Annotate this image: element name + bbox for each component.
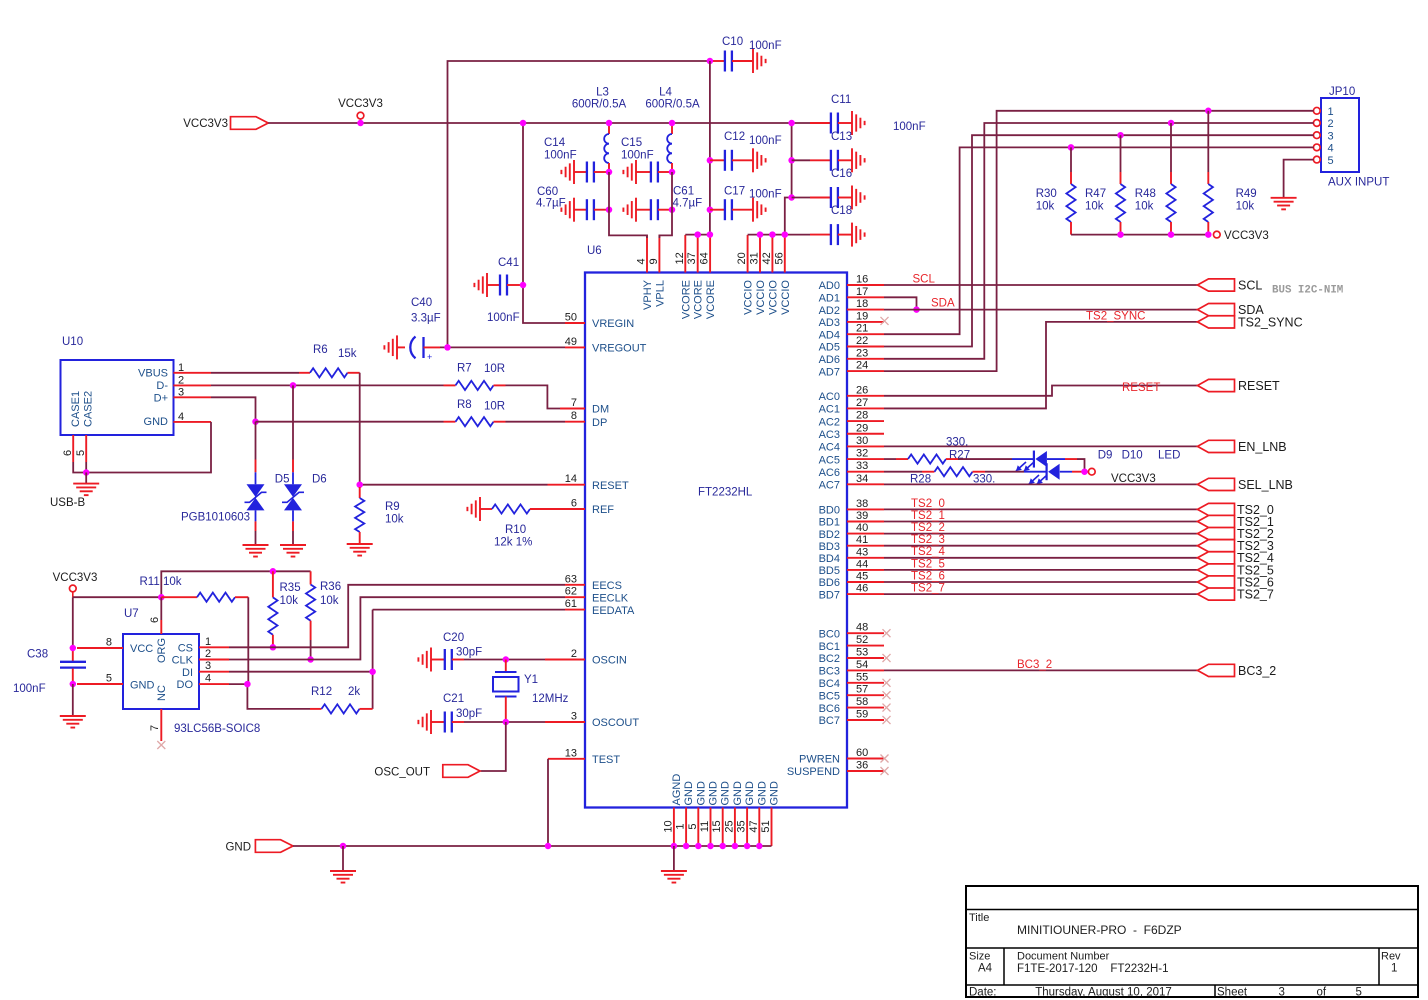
svg-text:53: 53 <box>856 647 868 659</box>
svg-text:10k: 10k <box>1236 201 1255 213</box>
svg-text:EECLK: EECLK <box>592 592 629 604</box>
svg-text:330.: 330. <box>946 437 968 449</box>
svg-text:TS2_SYNC: TS2_SYNC <box>1086 310 1145 322</box>
svg-text:C10: C10 <box>722 36 743 48</box>
svg-text:41: 41 <box>856 534 868 546</box>
svg-text:VCC3V3: VCC3V3 <box>183 118 228 130</box>
svg-text:VCCIO: VCCIO <box>767 280 779 315</box>
svg-text:47: 47 <box>748 820 760 832</box>
svg-text:TEST: TEST <box>592 754 620 766</box>
svg-text:100nF: 100nF <box>749 135 782 147</box>
svg-text:100nF: 100nF <box>487 312 520 324</box>
svg-text:TS2_1: TS2_1 <box>911 510 945 522</box>
svg-text:AD3: AD3 <box>819 317 840 329</box>
svg-text:AD2: AD2 <box>819 305 840 317</box>
svg-text:C38: C38 <box>27 649 48 661</box>
svg-text:22: 22 <box>856 335 868 347</box>
svg-text:93LC56B-SOIC8: 93LC56B-SOIC8 <box>174 723 260 735</box>
svg-text:D9: D9 <box>1098 450 1113 462</box>
svg-text:C17: C17 <box>724 186 745 198</box>
svg-text:D10: D10 <box>1122 450 1143 462</box>
svg-text:600R/0.5A: 600R/0.5A <box>572 99 627 111</box>
svg-text:GND: GND <box>756 781 768 806</box>
svg-text:VCORE: VCORE <box>693 280 705 319</box>
svg-text:AC2: AC2 <box>819 416 840 428</box>
svg-text:RESET: RESET <box>1122 382 1160 394</box>
svg-text:REF: REF <box>592 504 614 516</box>
svg-text:10: 10 <box>662 820 674 832</box>
svg-text:PGB1010603: PGB1010603 <box>181 512 250 524</box>
svg-text:11: 11 <box>699 821 711 832</box>
svg-text:AD5: AD5 <box>819 342 840 354</box>
svg-text:50: 50 <box>565 312 577 324</box>
svg-text:AC4: AC4 <box>819 442 840 454</box>
svg-text:D+: D+ <box>154 393 168 405</box>
svg-text:31: 31 <box>749 252 761 264</box>
svg-text:EECS: EECS <box>592 580 622 592</box>
svg-text:12MHz: 12MHz <box>532 693 569 705</box>
svg-text:1: 1 <box>675 823 687 829</box>
svg-text:AD1: AD1 <box>819 293 840 305</box>
svg-text:C11: C11 <box>831 94 851 106</box>
svg-text:10k: 10k <box>1135 201 1154 213</box>
svg-text:C20: C20 <box>443 632 464 644</box>
svg-text:SEL_LNB: SEL_LNB <box>1238 478 1293 492</box>
svg-text:AD6: AD6 <box>819 354 840 366</box>
svg-text:BD6: BD6 <box>819 577 840 589</box>
svg-text:60: 60 <box>856 747 868 759</box>
svg-text:2: 2 <box>205 648 211 660</box>
svg-text:SCL: SCL <box>913 274 936 286</box>
svg-text:4: 4 <box>636 258 648 264</box>
svg-text:RESET: RESET <box>592 480 629 492</box>
svg-text:3: 3 <box>571 711 577 723</box>
svg-text:R8: R8 <box>457 399 472 411</box>
svg-text:37: 37 <box>686 252 698 264</box>
svg-text:BC0: BC0 <box>819 628 840 640</box>
svg-text:100nF: 100nF <box>544 150 577 162</box>
svg-text:19: 19 <box>856 310 868 322</box>
svg-text:10R: 10R <box>484 401 505 413</box>
svg-text:R10: R10 <box>505 524 526 536</box>
svg-text:BD0: BD0 <box>819 505 840 517</box>
svg-text:10k: 10k <box>280 595 299 607</box>
svg-text:CASE2: CASE2 <box>83 391 95 427</box>
svg-text:C15: C15 <box>621 137 642 149</box>
svg-text:C61: C61 <box>673 186 694 198</box>
svg-text:D-: D- <box>156 380 168 392</box>
svg-text:TS2_7: TS2_7 <box>1237 588 1274 602</box>
svg-text:42: 42 <box>761 252 773 264</box>
svg-text:OSC_OUT: OSC_OUT <box>374 767 430 779</box>
svg-text:R9: R9 <box>385 501 400 513</box>
svg-text:10k: 10k <box>1036 201 1055 213</box>
svg-text:RESET: RESET <box>1238 379 1280 393</box>
svg-text:DP: DP <box>592 417 607 429</box>
svg-text:2: 2 <box>1328 118 1334 130</box>
svg-text:BC2: BC2 <box>819 653 840 665</box>
svg-text:C14: C14 <box>544 137 566 149</box>
svg-text:10k: 10k <box>320 595 339 607</box>
svg-text:24: 24 <box>856 360 868 372</box>
svg-text:EN_LNB: EN_LNB <box>1238 440 1287 454</box>
svg-text:3: 3 <box>1328 130 1334 142</box>
svg-text:GND: GND <box>130 679 155 691</box>
svg-text:35: 35 <box>736 820 748 832</box>
svg-text:4.7µF: 4.7µF <box>673 198 703 210</box>
svg-text:JP10: JP10 <box>1329 86 1355 98</box>
svg-text:Y1: Y1 <box>524 674 538 686</box>
svg-text:100nF: 100nF <box>893 121 926 133</box>
svg-text:8: 8 <box>106 637 112 649</box>
svg-text:BC3_2: BC3_2 <box>1017 659 1052 671</box>
svg-text:D6: D6 <box>312 474 327 486</box>
svg-text:64: 64 <box>699 252 711 264</box>
svg-text:100nF: 100nF <box>13 683 46 695</box>
svg-text:AC0: AC0 <box>819 391 840 403</box>
svg-text:ORG: ORG <box>156 638 168 663</box>
svg-text:VREGIN: VREGIN <box>592 318 634 330</box>
svg-text:AC7: AC7 <box>819 480 840 492</box>
svg-text:4: 4 <box>1328 143 1334 155</box>
svg-text:AGND: AGND <box>671 774 683 806</box>
svg-text:59: 59 <box>856 709 868 721</box>
svg-text:39: 39 <box>856 510 868 522</box>
svg-text:57: 57 <box>856 684 868 696</box>
svg-text:C16: C16 <box>831 168 852 180</box>
svg-text:C40: C40 <box>411 297 432 309</box>
svg-text:BD5: BD5 <box>819 565 840 577</box>
svg-text:R30: R30 <box>1036 188 1057 200</box>
svg-text:TS2_5: TS2_5 <box>911 558 945 570</box>
svg-text:40: 40 <box>856 522 868 534</box>
svg-text:AC3: AC3 <box>819 429 840 441</box>
svg-text:3.3µF: 3.3µF <box>411 313 441 325</box>
svg-text:R12: R12 <box>311 686 332 698</box>
svg-text:46: 46 <box>856 583 868 595</box>
svg-text:26: 26 <box>856 384 868 396</box>
svg-text:6: 6 <box>62 450 74 456</box>
svg-text:OSCOUT: OSCOUT <box>592 717 639 729</box>
svg-text:Sheet: Sheet <box>1217 987 1248 999</box>
svg-text:5: 5 <box>1356 987 1362 999</box>
svg-text:F1TE-2017-120 FT2232H-1: F1TE-2017-120 FT2232H-1 <box>1017 963 1169 975</box>
svg-text:30pF: 30pF <box>456 708 482 720</box>
svg-text:56: 56 <box>773 252 785 264</box>
svg-text:2k: 2k <box>348 686 360 698</box>
svg-text:C21: C21 <box>443 693 464 705</box>
svg-text:D5: D5 <box>275 474 290 486</box>
svg-text:GND: GND <box>744 781 756 806</box>
svg-text:+: + <box>427 352 432 362</box>
svg-text:12k 1%: 12k 1% <box>494 537 532 549</box>
svg-text:6: 6 <box>571 498 577 510</box>
svg-text:VCC3V3: VCC3V3 <box>1111 473 1156 485</box>
svg-text:VCC3V3: VCC3V3 <box>53 572 98 584</box>
svg-text:34: 34 <box>856 473 868 485</box>
svg-text:C12: C12 <box>724 131 745 143</box>
svg-text:54: 54 <box>856 659 868 671</box>
svg-text:5: 5 <box>1328 155 1334 167</box>
svg-text:15k: 15k <box>338 348 357 360</box>
svg-text:U6: U6 <box>587 245 602 257</box>
svg-text:9: 9 <box>648 258 660 264</box>
svg-text:33: 33 <box>856 460 868 472</box>
svg-text:10k: 10k <box>1085 201 1104 213</box>
svg-text:VPLL: VPLL <box>654 280 666 307</box>
svg-text:LED: LED <box>1158 450 1180 462</box>
svg-text:2: 2 <box>571 648 577 660</box>
svg-text:R36: R36 <box>320 581 341 593</box>
svg-text:BC1: BC1 <box>819 641 840 653</box>
svg-text:CASE1: CASE1 <box>70 391 82 427</box>
svg-text:VCCIO: VCCIO <box>780 280 792 315</box>
svg-text:10k: 10k <box>385 514 404 526</box>
svg-text:A4: A4 <box>978 963 993 975</box>
svg-text:USB-B: USB-B <box>50 497 85 509</box>
svg-text:16: 16 <box>856 274 868 286</box>
svg-text:7: 7 <box>149 725 161 731</box>
svg-text:DI: DI <box>182 667 193 679</box>
svg-text:3: 3 <box>205 660 211 672</box>
svg-text:3: 3 <box>1279 987 1285 999</box>
svg-text:32: 32 <box>856 448 868 460</box>
svg-text:23: 23 <box>856 347 868 359</box>
svg-text:Thursday, August 10, 2017: Thursday, August 10, 2017 <box>1035 987 1172 999</box>
svg-text:BD1: BD1 <box>819 517 840 529</box>
svg-text:61: 61 <box>565 598 577 610</box>
svg-text:DO: DO <box>177 679 194 691</box>
svg-text:OSCIN: OSCIN <box>592 655 627 667</box>
svg-text:30: 30 <box>856 435 868 447</box>
svg-text:VCCIO: VCCIO <box>743 280 755 315</box>
svg-text:TS2_SYNC: TS2_SYNC <box>1238 315 1303 329</box>
svg-text:Rev: Rev <box>1381 951 1401 963</box>
svg-text:AUX INPUT: AUX INPUT <box>1328 177 1389 189</box>
svg-text:BC5: BC5 <box>819 690 840 702</box>
svg-text:BD3: BD3 <box>819 541 840 553</box>
svg-text:TS2_0: TS2_0 <box>911 498 945 510</box>
svg-text:AD4: AD4 <box>819 329 840 341</box>
svg-text:1: 1 <box>1391 963 1397 975</box>
svg-text:8: 8 <box>571 410 577 422</box>
svg-text:20: 20 <box>736 252 748 264</box>
svg-text:R47: R47 <box>1085 188 1106 200</box>
svg-text:10R: 10R <box>484 363 505 375</box>
svg-text:62: 62 <box>565 586 577 598</box>
svg-text:38: 38 <box>856 498 868 510</box>
svg-text:GND: GND <box>708 781 720 806</box>
svg-text:VCC3V3: VCC3V3 <box>338 98 383 110</box>
svg-text:U10: U10 <box>62 336 83 348</box>
svg-text:C60: C60 <box>537 186 558 198</box>
svg-text:AC1: AC1 <box>819 404 840 416</box>
svg-text:Size: Size <box>969 951 990 963</box>
svg-text:7: 7 <box>571 397 577 409</box>
svg-text:BC3_2: BC3_2 <box>1238 664 1276 678</box>
svg-text:R11 10k: R11 10k <box>140 576 182 588</box>
svg-text:GND: GND <box>695 781 707 806</box>
svg-text:27: 27 <box>856 397 868 409</box>
svg-text:15: 15 <box>711 820 723 832</box>
svg-text:VPHY: VPHY <box>642 279 654 310</box>
svg-text:GND: GND <box>683 781 695 806</box>
svg-text:AD7: AD7 <box>819 366 840 378</box>
svg-text:DM: DM <box>592 404 609 416</box>
svg-text:R6: R6 <box>313 344 328 356</box>
svg-text:Document Number: Document Number <box>1017 951 1110 963</box>
svg-text:VCORE: VCORE <box>705 280 717 319</box>
svg-text:100nF: 100nF <box>621 150 654 162</box>
svg-text:VCORE: VCORE <box>680 280 692 319</box>
svg-text:BC3: BC3 <box>819 666 840 678</box>
svg-text:CS: CS <box>178 642 193 654</box>
svg-text:SDA: SDA <box>931 298 955 310</box>
svg-text:Title: Title <box>969 912 989 924</box>
svg-text:BD2: BD2 <box>819 529 840 541</box>
svg-text:58: 58 <box>856 696 868 708</box>
svg-text:VCC3V3: VCC3V3 <box>1224 230 1269 242</box>
svg-text:CLK: CLK <box>172 655 194 667</box>
svg-text:BD7: BD7 <box>819 589 840 601</box>
svg-text:R35: R35 <box>280 582 301 594</box>
svg-text:MINITIOUNER-PRO - F6DZP: MINITIOUNER-PRO - F6DZP <box>1017 923 1182 937</box>
svg-text:5: 5 <box>106 673 112 685</box>
svg-text:NC: NC <box>156 685 168 701</box>
svg-text:BC6: BC6 <box>819 703 840 715</box>
svg-text:GND: GND <box>225 841 251 853</box>
svg-text:BC4: BC4 <box>819 678 840 690</box>
svg-text:VCC: VCC <box>130 643 153 655</box>
svg-text:13: 13 <box>565 747 577 759</box>
svg-text:63: 63 <box>565 573 577 585</box>
svg-text:600R/0.5A: 600R/0.5A <box>645 99 700 111</box>
svg-text:43: 43 <box>856 546 868 558</box>
svg-text:SUSPEND: SUSPEND <box>787 766 840 778</box>
svg-text:6: 6 <box>149 617 161 623</box>
svg-text:GND: GND <box>720 781 732 806</box>
svg-text:C41: C41 <box>498 257 519 269</box>
svg-text:1: 1 <box>1328 106 1334 118</box>
svg-text:28: 28 <box>856 410 868 422</box>
svg-text:AD0: AD0 <box>819 280 840 292</box>
svg-text:U7: U7 <box>124 608 139 620</box>
svg-text:18: 18 <box>856 298 868 310</box>
svg-text:GND: GND <box>732 781 744 806</box>
svg-text:BD4: BD4 <box>819 553 840 565</box>
svg-text:TS2_3: TS2_3 <box>911 534 945 546</box>
svg-text:SCL: SCL <box>1238 279 1262 293</box>
svg-text:TS2_6: TS2_6 <box>911 570 945 582</box>
svg-text:EEDATA: EEDATA <box>592 605 635 617</box>
svg-text:BC7: BC7 <box>819 715 840 727</box>
svg-text:C13: C13 <box>831 131 852 143</box>
svg-text:30pF: 30pF <box>456 647 482 659</box>
svg-text:FT2232HL: FT2232HL <box>698 487 753 499</box>
svg-text:AC6: AC6 <box>819 467 840 479</box>
svg-text:44: 44 <box>856 558 868 570</box>
svg-text:R48: R48 <box>1135 188 1156 200</box>
svg-text:5: 5 <box>75 450 87 456</box>
svg-text:R7: R7 <box>457 363 472 375</box>
svg-text:4: 4 <box>205 672 211 684</box>
svg-text:17: 17 <box>856 286 868 298</box>
svg-text:45: 45 <box>856 571 868 583</box>
svg-text:14: 14 <box>565 473 577 485</box>
svg-text:55: 55 <box>856 671 868 683</box>
svg-text:TS2_4: TS2_4 <box>911 546 945 558</box>
svg-text:1: 1 <box>205 636 211 648</box>
svg-text:VCCIO: VCCIO <box>755 280 767 315</box>
svg-text:51: 51 <box>760 820 772 832</box>
svg-text:PWREN: PWREN <box>799 754 840 766</box>
svg-text:L3: L3 <box>596 87 609 99</box>
svg-text:of: of <box>1317 987 1327 999</box>
svg-text:L4: L4 <box>659 87 672 99</box>
svg-text:C18: C18 <box>831 205 852 217</box>
svg-text:GND: GND <box>769 781 781 806</box>
svg-text:29: 29 <box>856 422 868 434</box>
svg-text:R49: R49 <box>1236 188 1257 200</box>
svg-text:VREGOUT: VREGOUT <box>592 343 647 355</box>
svg-text:BUS I2C-NIM: BUS I2C-NIM <box>1272 285 1343 297</box>
svg-text:49: 49 <box>565 336 577 348</box>
svg-text:25: 25 <box>723 820 735 832</box>
svg-text:TS2_2: TS2_2 <box>911 522 945 534</box>
svg-text:48: 48 <box>856 622 868 634</box>
svg-text:36: 36 <box>856 760 868 772</box>
svg-text:AC5: AC5 <box>819 454 840 466</box>
svg-text:5: 5 <box>687 823 699 829</box>
svg-text:12: 12 <box>674 252 686 264</box>
svg-text:TS2_7: TS2_7 <box>911 583 945 595</box>
svg-text:GND: GND <box>144 416 169 428</box>
svg-text:52: 52 <box>856 634 868 646</box>
svg-text:21: 21 <box>856 323 868 335</box>
svg-text:VBUS: VBUS <box>138 368 168 380</box>
svg-text:Date:: Date: <box>969 987 997 999</box>
